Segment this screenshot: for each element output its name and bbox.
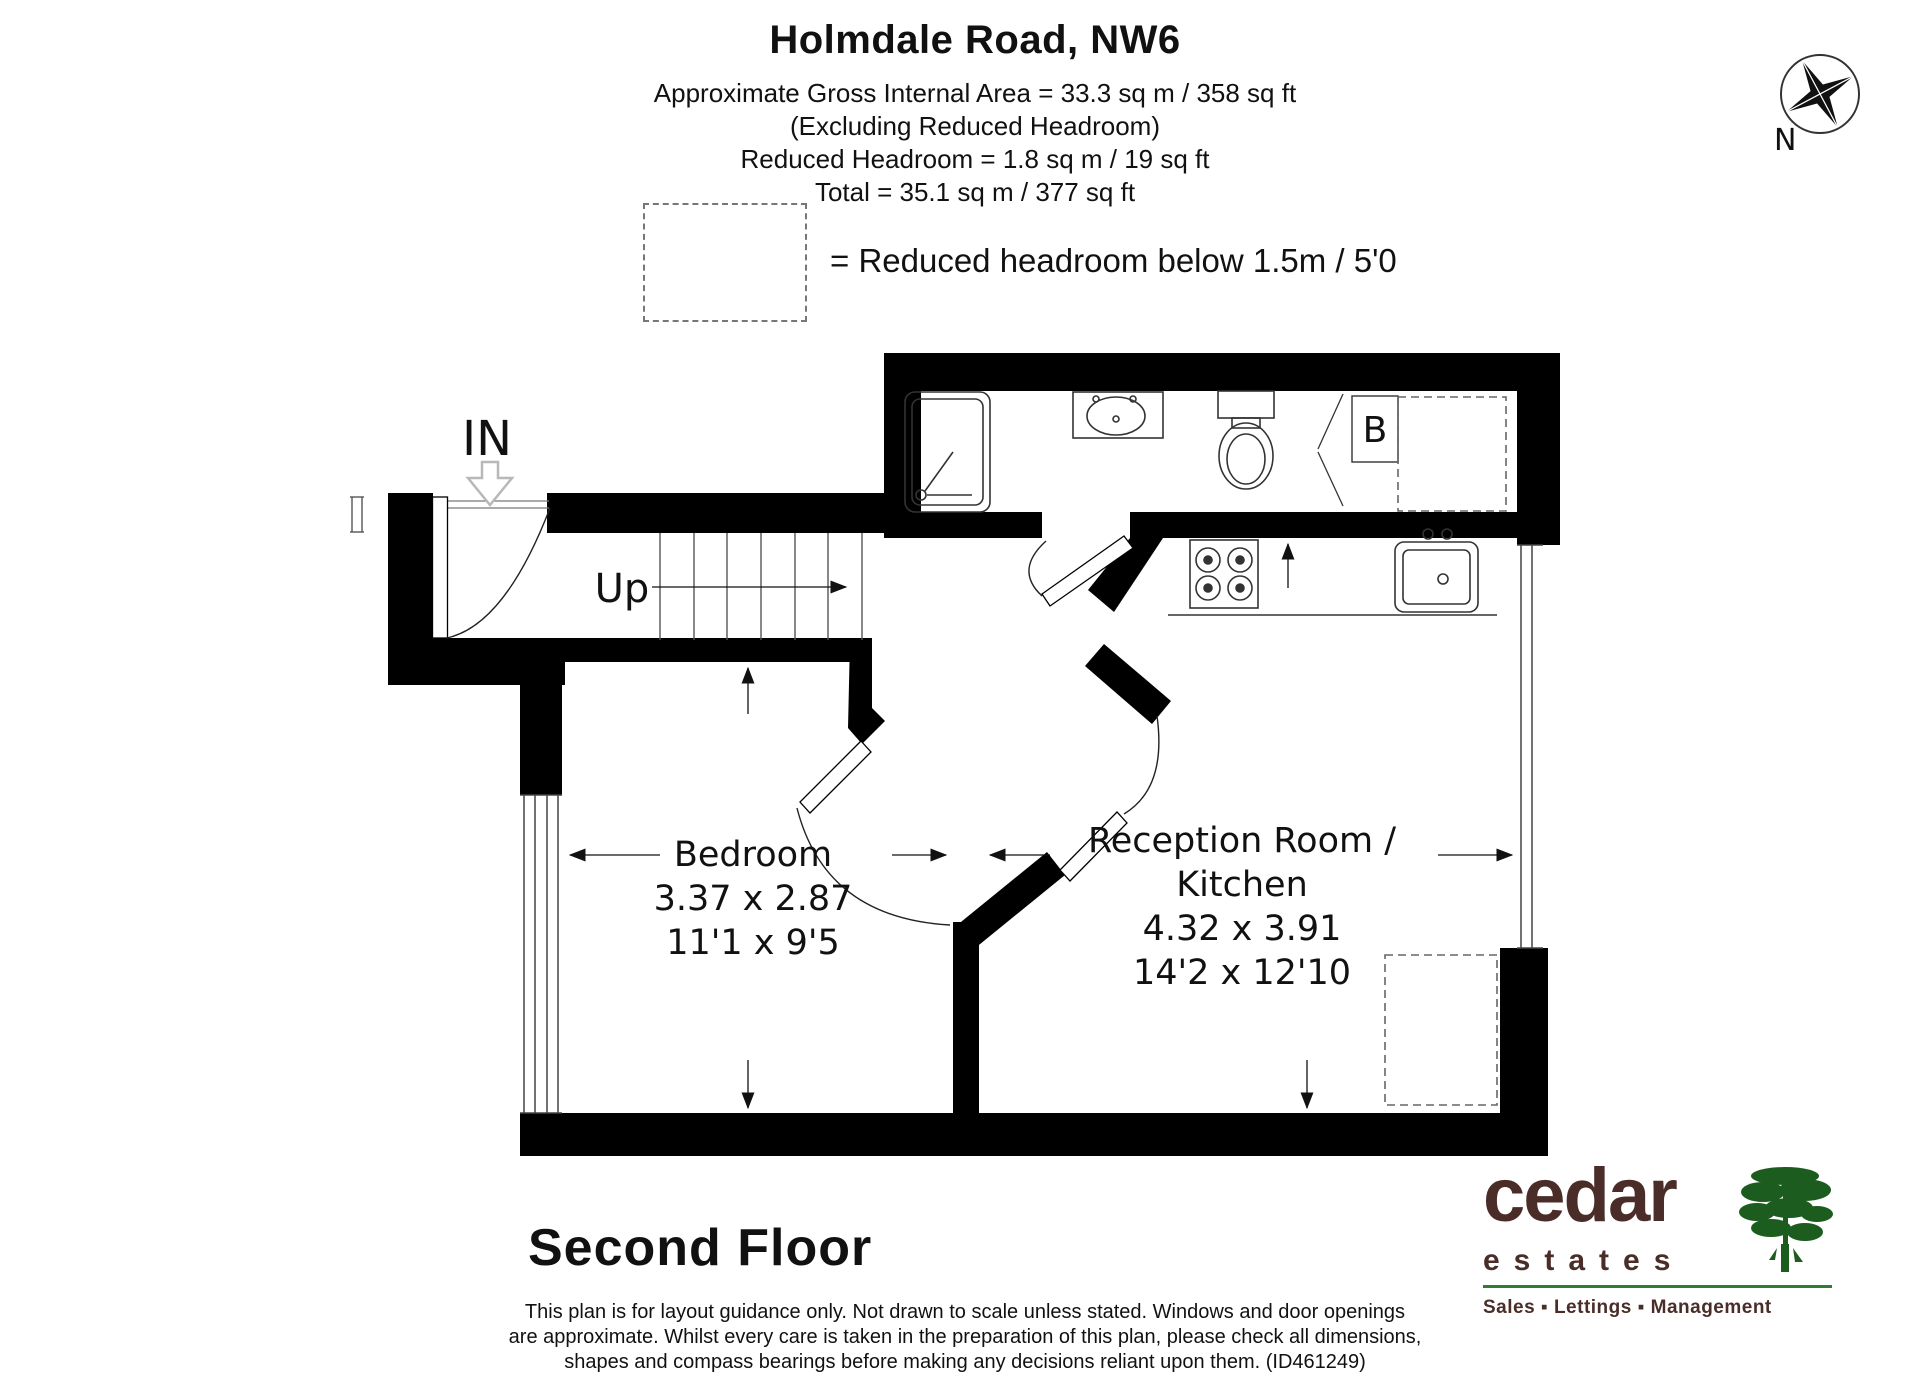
entrance-door-leaf (433, 497, 448, 638)
bedroom-window (520, 795, 562, 1113)
bathroom-door-arc (1029, 541, 1046, 596)
disclaimer-line1: This plan is for layout guidance only. N… (465, 1300, 1465, 1325)
bedroom-size-metric: 3.37 x 2.87 (654, 879, 853, 919)
bathroom-fixtures (905, 391, 1506, 512)
reduced-headroom-zone-reception (1385, 955, 1497, 1105)
reception-label: Reception Room / Kitchen 4.32 x 3.91 14'… (1088, 821, 1396, 993)
cupboard-door-lines (1318, 394, 1343, 506)
logo-divider (1483, 1285, 1832, 1288)
entrance-in-arrow-icon (468, 462, 512, 505)
reception-size-metric: 4.32 x 3.91 (1143, 909, 1342, 949)
agency-logo: cedar estates Sales ▪ Lettings ▪ Managem… (1483, 1118, 1843, 1319)
entrance-sidelight-window (350, 497, 364, 532)
kitchen-sink-icon (1395, 529, 1478, 612)
reduced-headroom-zone-bathroom (1398, 397, 1506, 511)
reception-window (1517, 545, 1543, 948)
up-label: Up (595, 566, 650, 612)
in-label: IN (462, 411, 512, 467)
disclaimer-line2: are approximate. Whilst every care is ta… (465, 1325, 1465, 1350)
floor-name: Second Floor (528, 1218, 872, 1278)
entrance-threshold (447, 501, 549, 508)
reception-door-arc (1124, 716, 1159, 814)
reception-name-line2: Kitchen (1176, 865, 1308, 905)
disclaimer: This plan is for layout guidance only. N… (465, 1300, 1465, 1375)
disclaimer-line3: shapes and compass bearings before makin… (465, 1350, 1465, 1375)
floorplan-page: Holmdale Road, NW6 Approximate Gross Int… (0, 0, 1920, 1398)
reception-name-line1: Reception Room / (1088, 821, 1396, 861)
bedroom-door-leaf (800, 741, 871, 813)
cedar-tree-icon (1733, 1162, 1838, 1277)
bedroom-size-imperial: 11'1 x 9'5 (666, 923, 840, 963)
toilet-icon (1218, 391, 1274, 489)
boiler-label: B (1363, 410, 1388, 451)
basin-icon (1073, 392, 1163, 438)
bedroom-label: Bedroom 3.37 x 2.87 11'1 x 9'5 (654, 835, 853, 963)
logo-tagline: Sales ▪ Lettings ▪ Management (1483, 1297, 1843, 1319)
reception-size-imperial: 14'2 x 12'10 (1133, 953, 1351, 993)
hob-icon (1190, 540, 1258, 608)
bedroom-name: Bedroom (674, 835, 832, 875)
entrance-door-arc (447, 508, 550, 638)
kitchen-fixtures (1168, 529, 1497, 1105)
